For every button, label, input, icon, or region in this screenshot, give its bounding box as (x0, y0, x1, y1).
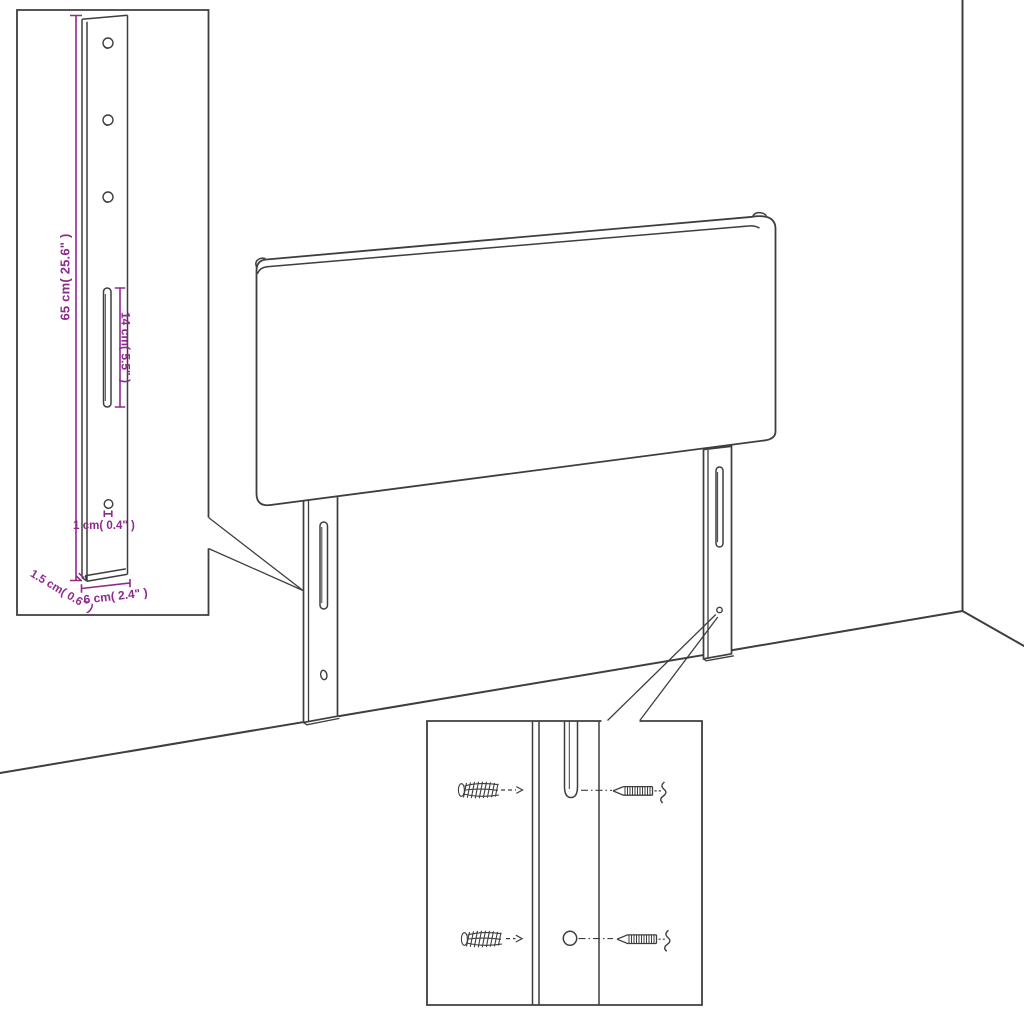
bracket-detail-inset: 65 cm( 25.6" ) 14 cm( 5.5" ) 1 cm( 0.4" … (17, 10, 209, 615)
left-leg (304, 492, 340, 725)
right-leg (704, 446, 734, 661)
fastening-detail-inset (427, 721, 702, 1005)
floor-right-line (963, 611, 1024, 646)
assembly-diagram: 65 cm( 25.6" ) 14 cm( 5.5" ) 1 cm( 0.4" … (0, 0, 1024, 1024)
dimension-label-slot-length: 14 cm( 5.5" ) (119, 312, 133, 383)
dimension-label-height: 65 cm( 25.6" ) (58, 233, 73, 320)
assembly-diagram-canvas: 65 cm( 25.6" ) 14 cm( 5.5" ) 1 cm( 0.4" … (0, 0, 1024, 1024)
headboard-panel (257, 216, 776, 505)
right-leg-slot (716, 467, 723, 547)
left-leg-slot (320, 522, 328, 609)
leg-closeup-hole (563, 931, 576, 945)
headboard (256, 213, 776, 506)
bracket-slot (104, 288, 112, 407)
bracket-inset-leader-lines (209, 518, 304, 591)
dimension-label-hole-diameter: 1 cm( 0.4" ) (73, 520, 135, 532)
right-leg-screw-hole (717, 607, 722, 612)
